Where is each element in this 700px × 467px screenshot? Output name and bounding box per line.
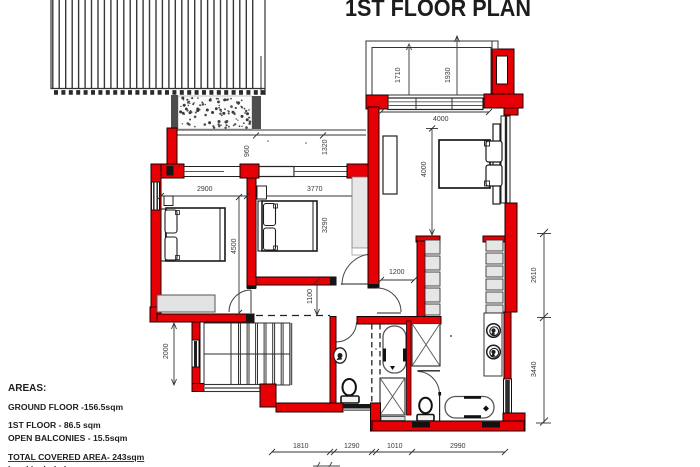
svg-text:3290: 3290 [322, 217, 329, 233]
svg-text:960: 960 [244, 145, 251, 157]
svg-text:1010: 1010 [387, 443, 403, 450]
svg-text:1200: 1200 [389, 269, 405, 276]
svg-text:OPEN BALCONIES - 15.5sqm: OPEN BALCONIES - 15.5sqm [8, 433, 128, 443]
svg-text:1930: 1930 [445, 67, 452, 83]
svg-text:2610: 2610 [531, 267, 538, 283]
svg-text:2900: 2900 [197, 186, 213, 193]
svg-text:1ST FLOOR - 86.5 sqm: 1ST FLOOR - 86.5 sqm [8, 420, 101, 430]
svg-text:3770: 3770 [307, 186, 323, 193]
svg-text:1320: 1320 [322, 139, 329, 155]
svg-text:1ST FLOOR PLAN: 1ST FLOOR PLAN [345, 0, 531, 22]
svg-text:4000: 4000 [433, 116, 449, 123]
svg-text:2000: 2000 [163, 343, 170, 359]
svg-text:TOTAL COVERED AREA- 243sqm: TOTAL COVERED AREA- 243sqm [8, 452, 145, 462]
svg-text:1810: 1810 [293, 443, 309, 450]
svg-text:4000: 4000 [421, 161, 428, 177]
svg-text:4500: 4500 [231, 238, 238, 254]
svg-text:1100: 1100 [307, 289, 314, 304]
svg-text:3440: 3440 [531, 361, 538, 377]
svg-text:2990: 2990 [450, 443, 466, 450]
svg-text:GROUND FLOOR -156.5sqm: GROUND FLOOR -156.5sqm [8, 402, 123, 412]
svg-text:AREAS:: AREAS: [8, 383, 46, 394]
svg-text:1290: 1290 [344, 443, 360, 450]
svg-text:1710: 1710 [395, 67, 402, 83]
